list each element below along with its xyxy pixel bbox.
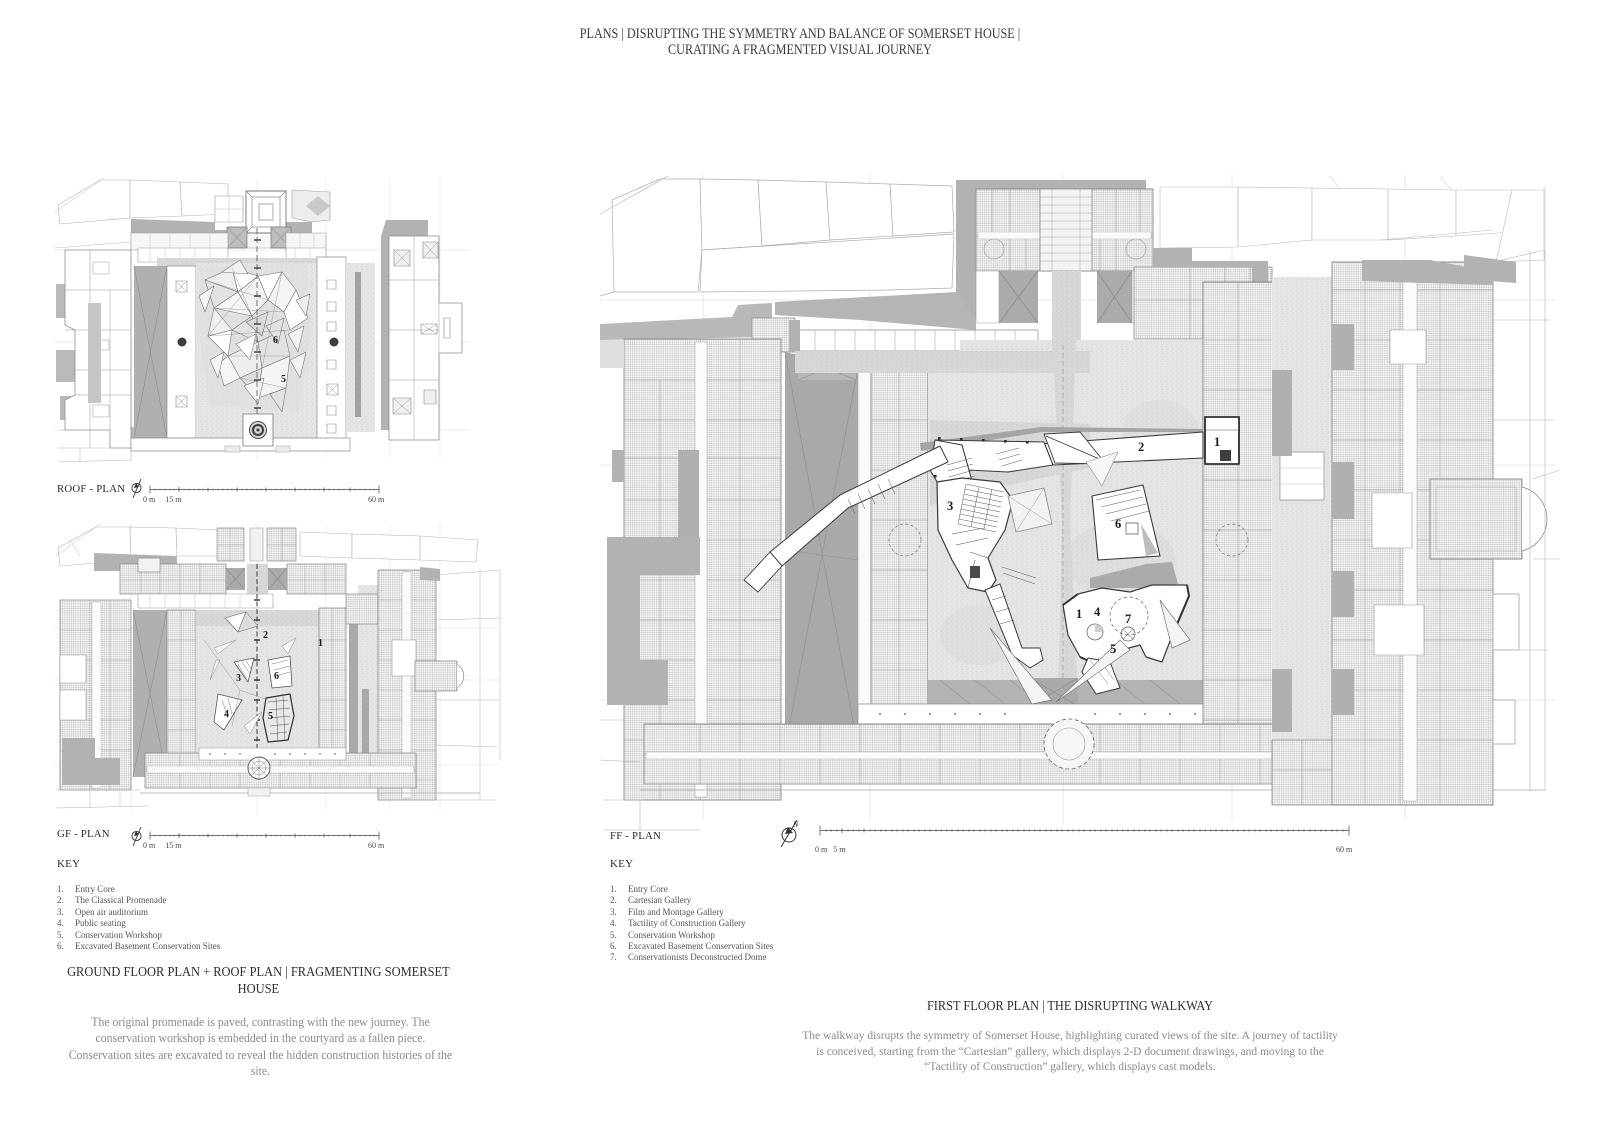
svg-text:N: N (792, 820, 799, 829)
svg-text:6: 6 (273, 335, 278, 346)
svg-text:1: 1 (1214, 435, 1220, 449)
svg-text:5: 5 (268, 711, 273, 722)
svg-text:1: 1 (1076, 607, 1082, 621)
svg-text:3: 3 (236, 673, 241, 684)
svg-text:5: 5 (281, 374, 286, 385)
svg-text:3: 3 (947, 499, 953, 513)
svg-text:6: 6 (274, 671, 279, 682)
svg-text:7: 7 (1125, 612, 1131, 626)
svg-text:2: 2 (1138, 440, 1144, 454)
svg-text:1: 1 (318, 638, 323, 649)
svg-text:6: 6 (1115, 517, 1121, 531)
svg-text:2: 2 (263, 630, 268, 641)
svg-text:4: 4 (1094, 605, 1101, 619)
svg-text:5: 5 (1110, 642, 1116, 656)
svg-text:4: 4 (224, 709, 229, 720)
